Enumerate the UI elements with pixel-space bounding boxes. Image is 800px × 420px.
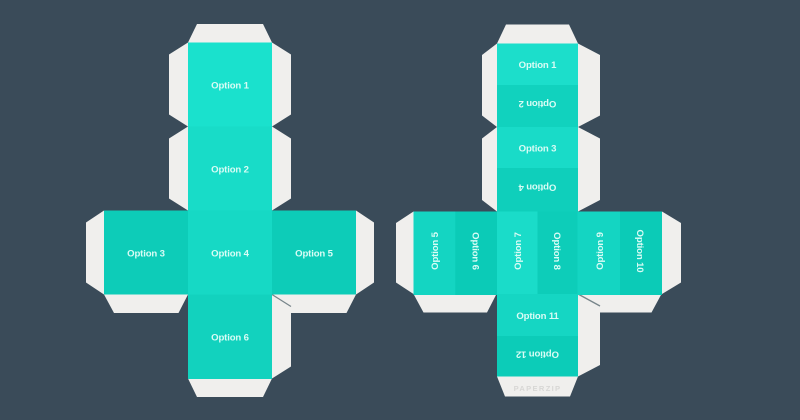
svg-text:Option 5: Option 5 xyxy=(430,231,441,270)
svg-text:Option 6: Option 6 xyxy=(211,333,249,344)
svg-text:Option 10: Option 10 xyxy=(634,230,645,273)
svg-text:Option 3: Option 3 xyxy=(127,249,165,260)
svg-text:Option 4: Option 4 xyxy=(211,249,250,260)
svg-text:Option 1: Option 1 xyxy=(211,81,250,92)
svg-text:Option 3: Option 3 xyxy=(519,143,557,154)
svg-text:Option 6: Option 6 xyxy=(469,232,480,270)
svg-text:Option 2: Option 2 xyxy=(519,98,557,109)
svg-text:Option 4: Option 4 xyxy=(518,182,557,193)
svg-text:Option 8: Option 8 xyxy=(551,232,562,271)
svg-text:PAPERZIP: PAPERZIP xyxy=(514,384,562,393)
svg-text:Option 12: Option 12 xyxy=(516,349,559,360)
svg-text:Option 5: Option 5 xyxy=(295,249,334,260)
svg-text:Option 7: Option 7 xyxy=(513,232,524,270)
svg-text:Option 9: Option 9 xyxy=(595,232,606,270)
svg-text:Option 2: Option 2 xyxy=(211,165,249,176)
svg-text:Option 11: Option 11 xyxy=(516,311,559,322)
svg-text:Option 1: Option 1 xyxy=(519,60,558,71)
